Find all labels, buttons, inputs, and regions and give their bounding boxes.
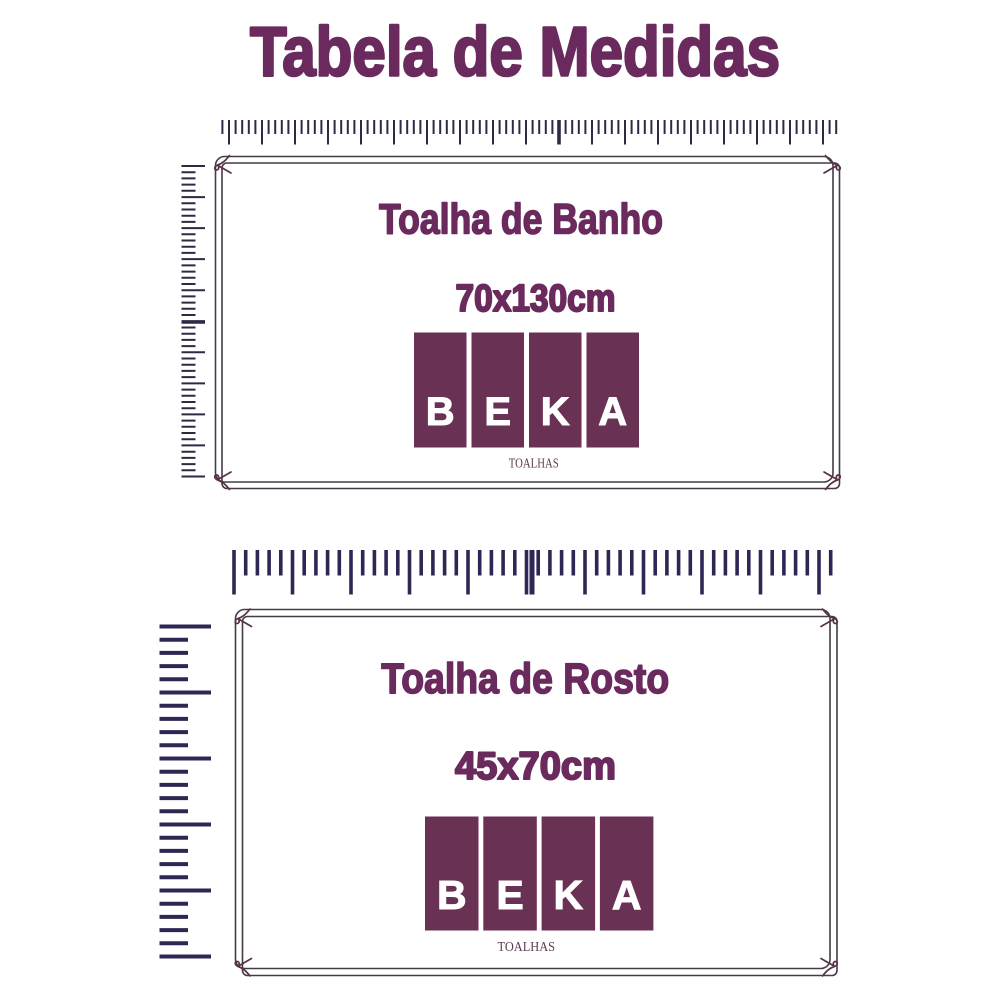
svg-text:E: E [484, 390, 511, 434]
svg-text:45x70cm: 45x70cm [455, 745, 616, 788]
svg-text:A: A [598, 390, 627, 434]
svg-text:K: K [554, 872, 584, 918]
svg-text:TOALHAS: TOALHAS [498, 940, 556, 955]
svg-text:70x130cm: 70x130cm [456, 278, 616, 320]
svg-text:TOALHAS: TOALHAS [509, 456, 559, 471]
svg-text:A: A [612, 872, 642, 918]
svg-text:K: K [541, 390, 570, 434]
svg-text:B: B [426, 390, 455, 434]
svg-text:Toalha de Banho: Toalha de Banho [379, 196, 663, 244]
svg-text:Tabela de Medidas: Tabela de Medidas [250, 13, 780, 91]
svg-text:B: B [437, 872, 467, 918]
svg-text:Toalha de Rosto: Toalha de Rosto [381, 655, 669, 703]
svg-text:E: E [496, 872, 523, 918]
